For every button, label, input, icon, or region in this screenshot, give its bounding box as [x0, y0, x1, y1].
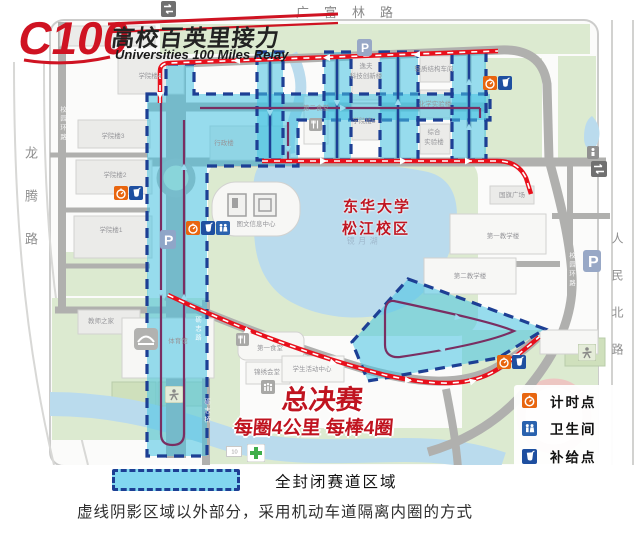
map-legend: 计时点 卫生间 补给点: [514, 385, 616, 472]
legend-supply-label: 补给点: [550, 446, 597, 466]
timing-point-icon: [186, 221, 200, 235]
building-label: 行政楼: [214, 139, 233, 147]
parking-icon: P: [160, 230, 176, 249]
building-label: 第一教学楼: [487, 232, 519, 240]
building-label: 锦绣会堂: [254, 368, 280, 376]
relay-course-map-poster: C100 高校百英里接力 Universities 100 Miles Rela…: [0, 0, 639, 536]
building-label: 第二教学楼: [454, 272, 486, 280]
closed-course-swatch: [112, 469, 240, 491]
medical-cross-icon: [247, 444, 265, 462]
building-label: 实验楼: [424, 138, 443, 146]
campus-name: 松江校区: [342, 218, 410, 239]
building-label: 学院楼1: [99, 226, 122, 234]
building-label: 教师之家: [88, 317, 114, 325]
timing-point-icon: [114, 186, 128, 200]
event-logo: C100 高校百英里接力 Universities 100 Miles Rela…: [16, 10, 346, 68]
timing-point-icon: [522, 393, 537, 408]
supply-point-icon: [522, 449, 537, 464]
supply-point-icon: [201, 221, 215, 235]
building-label: 图文信息中心: [237, 220, 276, 228]
supply-point-icon: [512, 355, 526, 369]
restroom-icon: [522, 421, 537, 436]
road-ring-west: 校园环路: [59, 106, 68, 142]
sports-court-icon: [578, 344, 596, 361]
closed-course-label: 全封闭赛道区域: [275, 470, 398, 492]
legend-supply-row: 补给点: [514, 446, 616, 466]
svg-text:P: P: [361, 41, 369, 55]
parking-icon: P: [357, 39, 372, 56]
building-label: 轻质结构车间: [415, 65, 454, 73]
building-label: 学院楼3: [101, 132, 124, 140]
pedestrian-icon: [587, 146, 599, 159]
road-renminbei: 人民北路: [609, 232, 626, 380]
building-label: 逸夫: [360, 62, 373, 70]
restroom-icon: [216, 221, 230, 235]
sports-court-icon: [165, 386, 183, 403]
building-label: 第一食堂: [257, 344, 283, 352]
building-label: 学院楼2: [103, 171, 126, 179]
canteen-icon: [236, 333, 249, 346]
building-label: 第二食堂: [303, 104, 329, 112]
supply-point-icon: [129, 186, 143, 200]
timing-point-icon: [483, 76, 497, 90]
stadium-icon: [134, 328, 158, 350]
canteen-icon: [309, 118, 322, 131]
timing-point-icon: [497, 355, 511, 369]
building-label: 综合: [428, 128, 441, 136]
bridge-lizhi: 砺志桥: [203, 398, 212, 425]
building-label: 化学实验楼: [419, 100, 451, 108]
road-longteng: 龙腾路: [21, 146, 40, 275]
event-subtitle: Universities 100 Miles Relay: [115, 47, 288, 62]
svg-text:P: P: [164, 232, 173, 248]
university-name: 东华大学: [343, 196, 411, 217]
building-label: 学院楼4: [138, 72, 161, 80]
svg-text:P: P: [588, 254, 599, 271]
footer-note: 虚线阴影区域以外部分，采用机动车道隔离内圈的方式: [77, 500, 473, 522]
road-ring-east: 校园环路: [568, 252, 577, 288]
road-lizhi: 砺志路: [194, 316, 203, 343]
building-label: 体育馆: [168, 337, 187, 345]
theater-icon: [261, 380, 275, 394]
building-label: 学生活动中心: [293, 365, 332, 373]
legend-restroom-row: 卫生间: [514, 418, 616, 438]
legend-timing-label: 计时点: [550, 391, 597, 411]
building-label: 学院楼5: [352, 117, 375, 125]
gate-icon: [591, 161, 607, 177]
supply-point-icon: [498, 76, 512, 90]
race-title: 总决赛: [280, 378, 364, 417]
building-label: 国旗广场: [499, 191, 525, 199]
race-detail: 每圈4公里 每棒4圈: [233, 413, 395, 440]
legend-restroom-label: 卫生间: [550, 418, 597, 438]
parking-icon: P: [583, 250, 601, 272]
legend-timing-row: 计时点: [514, 391, 616, 411]
bridge-number-badge: 10: [226, 446, 242, 457]
lake-name: 镜月湖: [347, 237, 382, 246]
building-label: 科技创新楼: [350, 72, 382, 80]
